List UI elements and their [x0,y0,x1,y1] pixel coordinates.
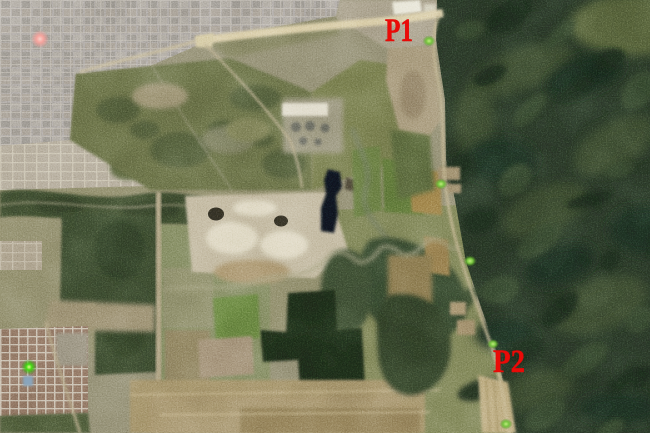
svg-text:P2: P2 [493,344,525,380]
svg-text:P1: P1 [385,13,413,49]
